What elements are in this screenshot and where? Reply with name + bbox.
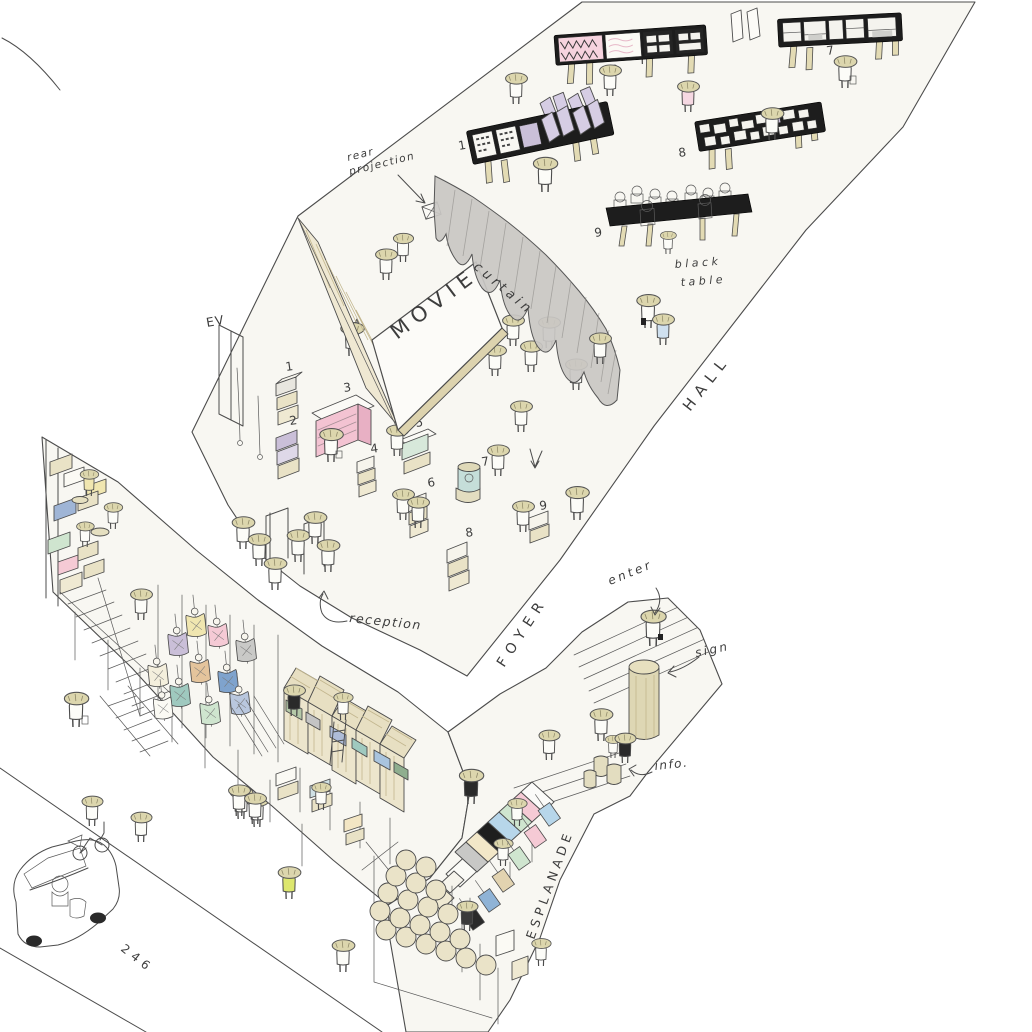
visitor-figure	[131, 812, 152, 842]
car	[14, 840, 120, 947]
cafe-table	[72, 497, 88, 504]
road-edge-lower	[0, 948, 146, 1032]
visitor-figure	[264, 558, 287, 590]
ev-label: EV	[205, 312, 226, 330]
illustration-canvas: 246	[0, 0, 1032, 1032]
info-label: info.	[654, 756, 689, 773]
car-wheel	[26, 936, 42, 947]
visitor-figure	[82, 796, 103, 826]
visitor-figure	[64, 692, 88, 727]
sign-pillar	[629, 660, 659, 740]
foyer-stand-4	[357, 456, 376, 497]
visitor-figure	[532, 939, 551, 966]
road-stray-line	[2, 38, 60, 90]
cafe-table	[91, 528, 109, 536]
foyer-stand-8	[447, 542, 469, 591]
bag	[641, 318, 646, 325]
route-246-label: 246	[118, 941, 156, 975]
car-wheel	[90, 913, 106, 924]
visitor-figure	[332, 940, 355, 972]
hand-drawn-venue-plan: 246	[0, 0, 1032, 1032]
enter-label: enter	[606, 557, 655, 588]
bag	[658, 634, 663, 640]
cyclist	[68, 796, 109, 860]
foyer-stand-2	[276, 430, 299, 479]
car-windshield	[24, 848, 86, 888]
bag	[82, 716, 88, 724]
driver-head	[52, 876, 68, 892]
car-seat	[70, 898, 86, 918]
foyer-stand-7	[456, 463, 480, 503]
visitor-figure	[278, 867, 301, 899]
